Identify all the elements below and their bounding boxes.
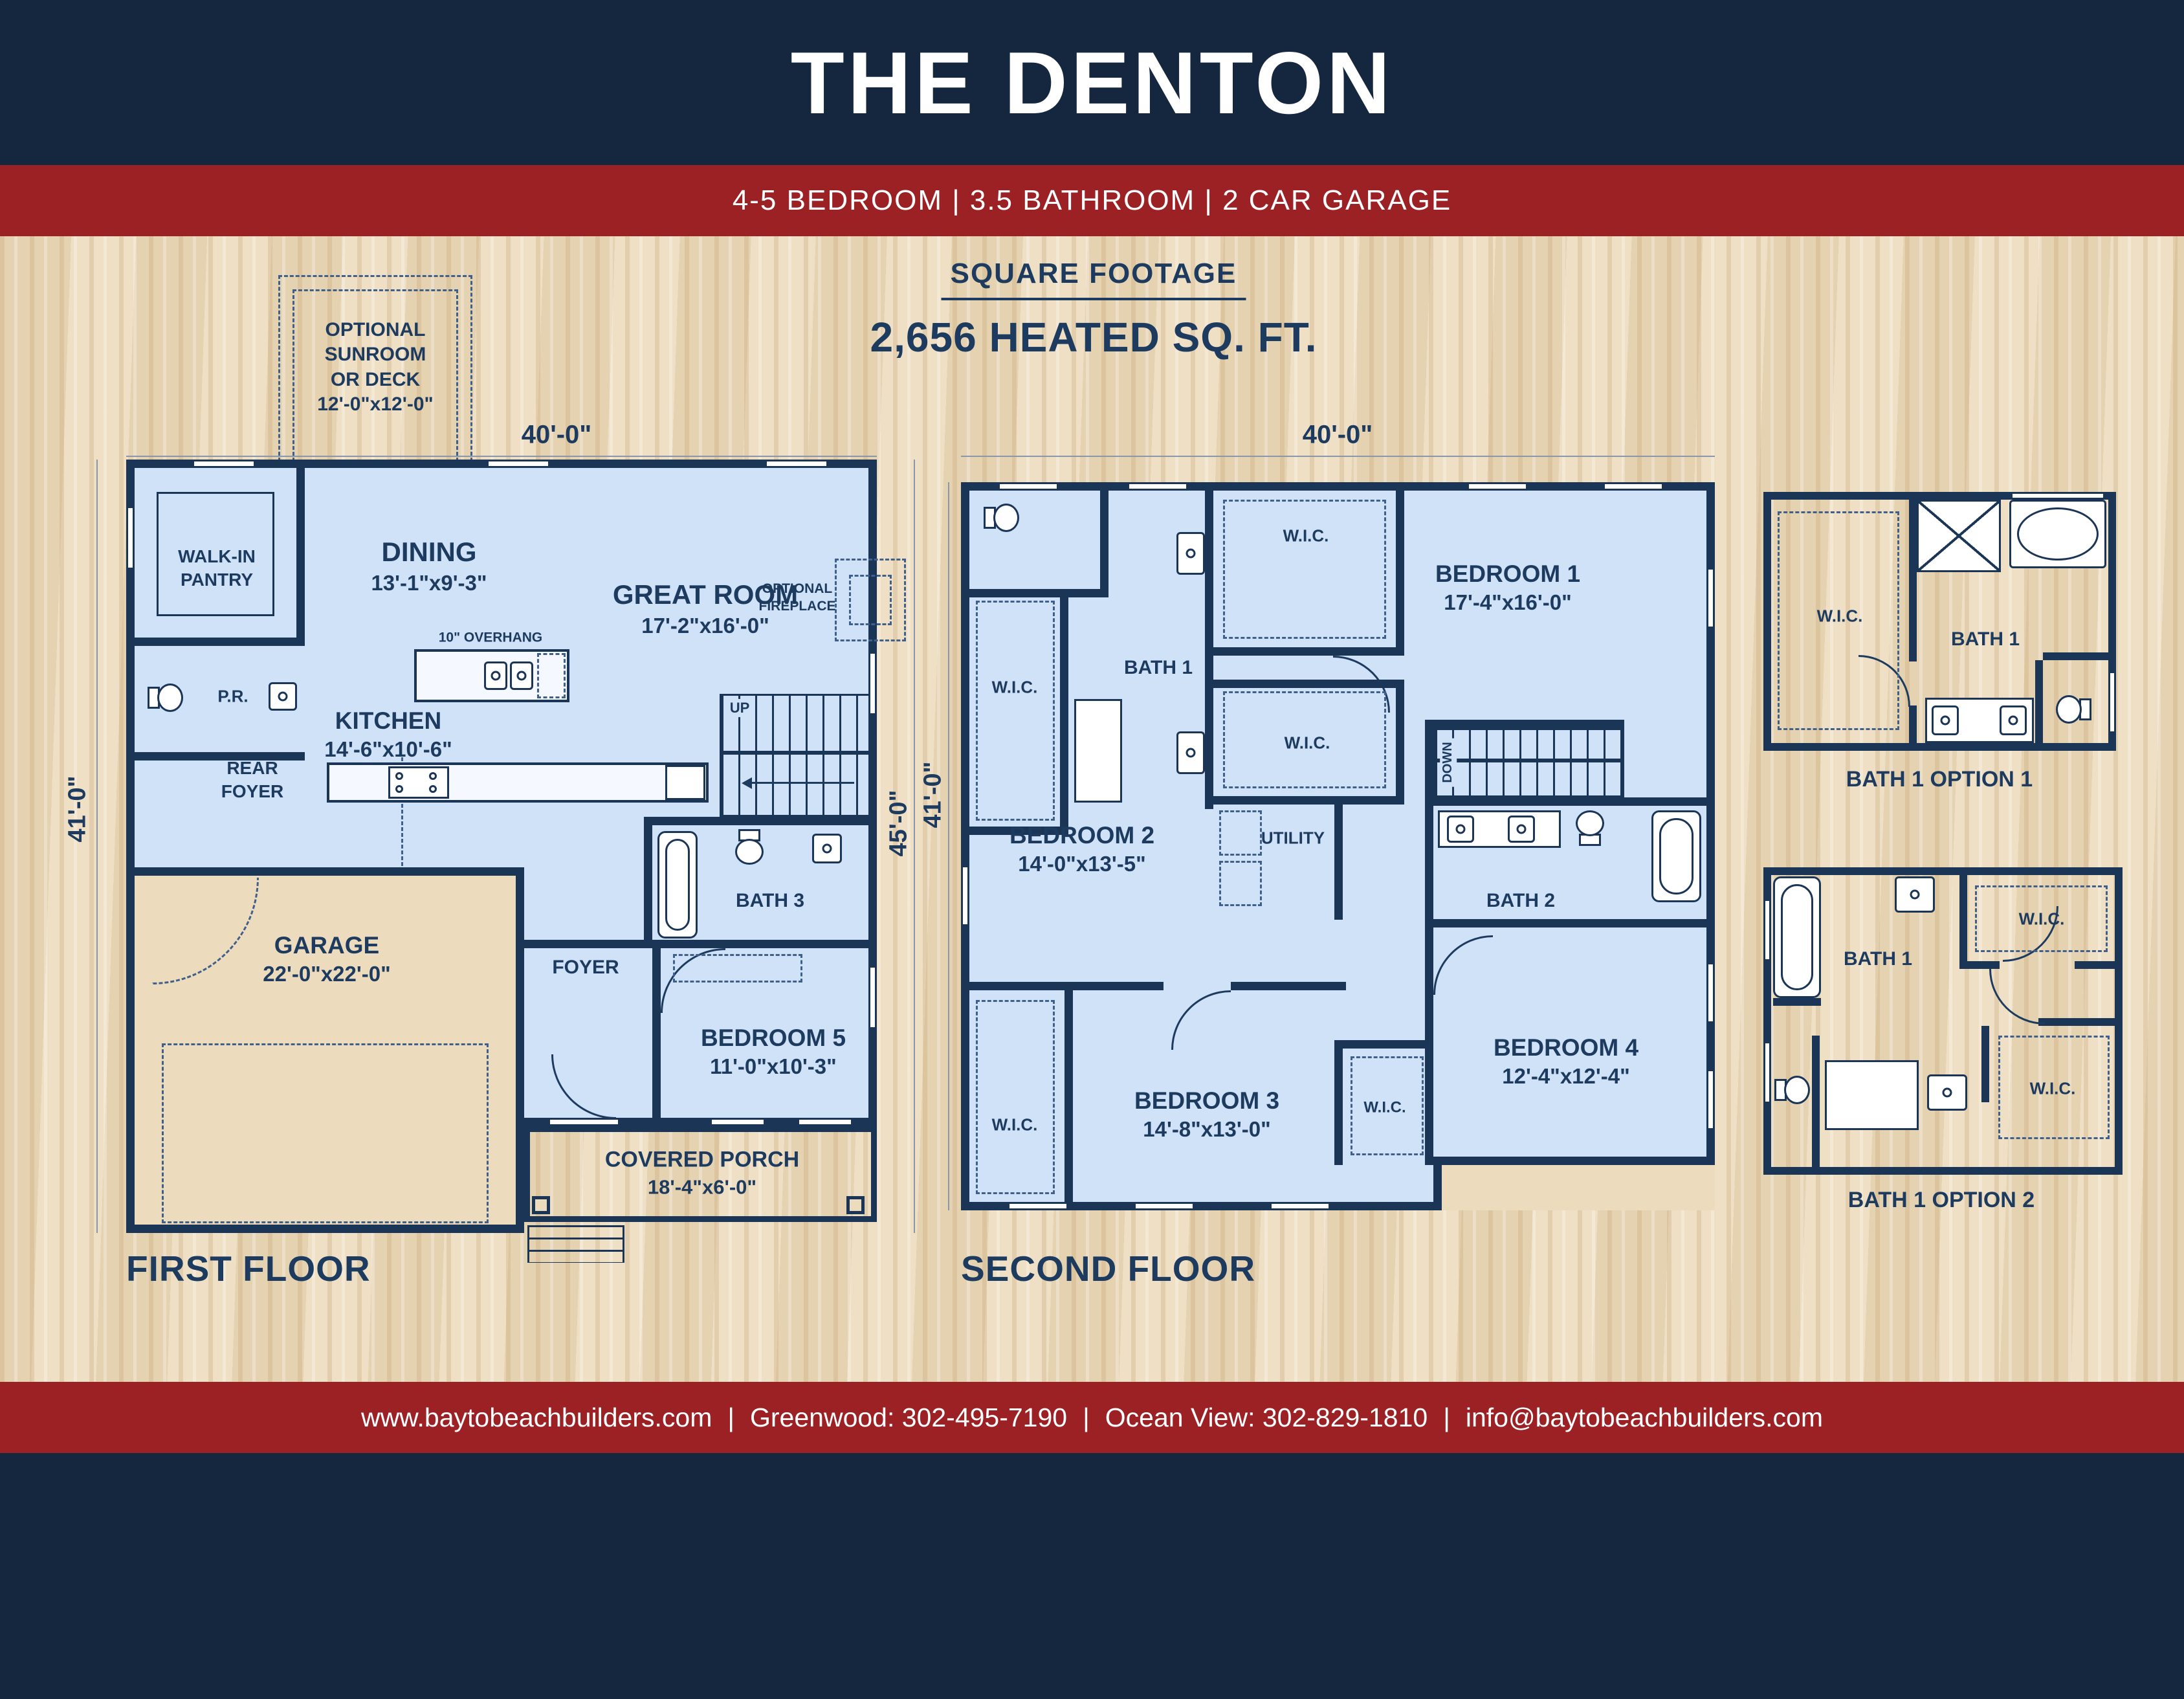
toilet-icon xyxy=(739,829,764,863)
rear-foyer-label: FOYER xyxy=(221,780,283,803)
dining-name: DINING xyxy=(371,535,487,570)
window xyxy=(126,508,135,568)
utility-label: UTILITY xyxy=(1261,827,1325,849)
window xyxy=(961,867,969,924)
porch-name: COVERED PORCH xyxy=(605,1146,799,1174)
wall xyxy=(1213,680,1404,688)
wall xyxy=(1773,998,1821,1006)
fireplace-label: FIREPLACE xyxy=(758,598,835,616)
overhang-label: 10" OVERHANG xyxy=(439,630,543,647)
first-floor-title: FIRST FLOOR xyxy=(126,1248,371,1289)
fireplace-inner-outline xyxy=(849,575,892,625)
bath1-label: BATH 1 xyxy=(1951,627,2020,652)
wall xyxy=(1425,797,1433,927)
square-footage-heading: SQUARE FOOTAGE xyxy=(942,258,1246,300)
bedroom5-dims: 11'-0"x10'-3" xyxy=(701,1054,846,1081)
window xyxy=(1000,482,1057,491)
sink-icon xyxy=(1176,532,1205,575)
dining-dims: 13'-1"x9'-3" xyxy=(371,570,487,597)
closet-outline xyxy=(976,601,1055,821)
stair-rail xyxy=(1433,759,1624,762)
wall xyxy=(1812,1036,1820,1167)
wall xyxy=(1396,491,1404,656)
window xyxy=(1136,1202,1193,1210)
flyer-page: THE DENTON 4-5 BEDROOM | 3.5 BATHROOM | … xyxy=(0,0,2184,1699)
sink-icon xyxy=(269,682,297,711)
wic-label: W.I.C. xyxy=(1817,605,1863,627)
window xyxy=(1763,901,1771,959)
wall xyxy=(1909,500,1917,661)
porch-dims: 18'-4"x6'-0" xyxy=(605,1174,799,1200)
bedroom1-name: BEDROOM 1 xyxy=(1435,559,1580,589)
sink-icon xyxy=(812,834,842,863)
closet-outline xyxy=(976,1000,1055,1194)
toilet-icon xyxy=(1774,1076,1808,1100)
wall xyxy=(969,589,1109,597)
sink-icon xyxy=(1895,876,1935,913)
dimension-line xyxy=(914,460,915,1233)
wall xyxy=(1959,961,2000,969)
wic-label: W.I.C. xyxy=(992,676,1038,698)
wall xyxy=(1213,796,1404,805)
window xyxy=(1706,1071,1715,1128)
wall xyxy=(1425,927,1433,1040)
wic-label: W.I.C. xyxy=(2030,1078,2076,1099)
wall xyxy=(1425,720,1433,797)
separator: | xyxy=(1443,1403,1450,1433)
powder-room-label: P.R. xyxy=(217,685,248,707)
closet-outline xyxy=(673,954,802,983)
bathtub-icon xyxy=(1773,876,1821,998)
wall xyxy=(1334,1040,1343,1165)
second-floor-notch xyxy=(1433,1157,1715,1210)
wic-label: W.I.C. xyxy=(1283,525,1329,546)
kitchen-name: KITCHEN xyxy=(324,705,452,736)
wall xyxy=(524,940,877,948)
wall xyxy=(1909,705,1917,743)
shower-icon xyxy=(1917,500,2001,572)
second-floor-depth-dim: 41'-0" xyxy=(920,761,947,828)
wall xyxy=(1064,990,1073,1210)
window xyxy=(1763,1043,1771,1102)
email-link[interactable]: info@baytobeachbuilders.com xyxy=(1466,1403,1823,1433)
great-room-dims: 17'-2"x16'-0" xyxy=(613,612,798,639)
sunroom-dims: 12'-0"x12'-0" xyxy=(317,392,434,417)
bath1-label: BATH 1 xyxy=(1124,656,1193,680)
window xyxy=(1605,482,1662,491)
stairs-up-label: UP xyxy=(726,699,754,717)
garage-name: GARAGE xyxy=(263,930,390,961)
window xyxy=(799,1118,851,1126)
page-title: THE DENTON xyxy=(791,32,1394,133)
dryer-outline xyxy=(1219,861,1262,906)
bedroom4-name: BEDROOM 4 xyxy=(1494,1032,1638,1063)
wall xyxy=(1334,805,1343,920)
sunroom-label: OPTIONAL xyxy=(317,318,434,342)
window xyxy=(489,460,548,468)
sink-icon xyxy=(1927,1074,1967,1111)
dimension-line xyxy=(126,456,877,457)
front-door-opening xyxy=(550,1118,618,1126)
wic-label: W.I.C. xyxy=(992,1114,1038,1135)
bathtub-icon xyxy=(1651,810,1701,902)
first-floor-depth-dim: 41'-0" xyxy=(64,775,92,842)
wall xyxy=(1959,875,1967,969)
bedroom5-name: BEDROOM 5 xyxy=(701,1023,846,1053)
wall xyxy=(1981,1026,1989,1102)
toilet-icon xyxy=(984,504,1017,528)
sink-icon xyxy=(484,661,507,690)
bath2-label: BATH 2 xyxy=(1486,889,1555,913)
kitchen-dims: 14'-6"x10'-6" xyxy=(324,737,452,764)
toilet-icon xyxy=(2058,699,2091,724)
wall xyxy=(1433,919,1715,927)
second-floor-width-dim: 40'-0" xyxy=(1303,421,1373,450)
sink-icon xyxy=(1508,816,1535,843)
sink-icon xyxy=(2000,705,2027,735)
wall xyxy=(2043,652,2108,660)
porch-steps xyxy=(527,1225,624,1263)
window xyxy=(1129,482,1186,491)
square-footage-value: 2,656 HEATED SQ. FT. xyxy=(870,313,1318,361)
bedroom2-dims: 14'-0"x13'-5" xyxy=(1009,851,1154,878)
first-floor-overall-depth-dim: 45'-0" xyxy=(885,790,913,856)
greenwood-phone[interactable]: Greenwood: 302-495-7190 xyxy=(750,1403,1067,1433)
window xyxy=(767,460,826,468)
wall xyxy=(2038,1018,2123,1026)
window xyxy=(1272,1202,1329,1210)
wall xyxy=(296,468,305,638)
bedroom4-dims: 12'-4"x12'-4" xyxy=(1494,1063,1638,1091)
foyer-label: FOYER xyxy=(552,955,619,980)
window xyxy=(194,460,254,468)
dimension-line xyxy=(96,460,98,1233)
wall xyxy=(644,817,877,825)
wall xyxy=(135,638,305,646)
separator: | xyxy=(727,1403,734,1433)
separator: | xyxy=(1083,1403,1090,1433)
bathtub-icon xyxy=(657,831,698,938)
porch-post xyxy=(846,1196,865,1214)
wall xyxy=(652,940,661,1126)
wic-label: W.I.C. xyxy=(2019,908,2065,929)
pantry-label: PANTRY xyxy=(178,568,256,592)
sunroom-label: SUNROOM xyxy=(317,343,434,368)
toilet-icon xyxy=(148,683,181,708)
sink-icon xyxy=(1447,816,1474,843)
rear-foyer-label: REAR xyxy=(221,757,283,780)
bedroom3-name: BEDROOM 3 xyxy=(1134,1085,1279,1116)
square-footage-block: SQUARE FOOTAGE 2,656 HEATED SQ. FT. xyxy=(870,258,1318,361)
first-floor-width-dim: 40'-0" xyxy=(522,421,592,450)
spec-summary: 4-5 BEDROOM | 3.5 BATHROOM | 2 CAR GARAG… xyxy=(733,184,1451,217)
sink-icon xyxy=(1176,731,1205,774)
porch-post xyxy=(532,1196,550,1214)
window xyxy=(1706,964,1715,1021)
window xyxy=(2108,673,2116,731)
wall xyxy=(1100,491,1109,597)
fridge-icon xyxy=(665,765,705,800)
fireplace-label: OPTIONAL xyxy=(758,581,835,598)
window xyxy=(2013,492,2103,500)
wall xyxy=(1060,589,1068,835)
bath3-label: BATH 3 xyxy=(736,889,804,913)
kitchen-counter xyxy=(327,762,709,803)
bath1-option2-title: BATH 1 OPTION 2 xyxy=(1848,1186,2035,1215)
wic-label: W.I.C. xyxy=(1363,1098,1406,1118)
ocean-view-phone[interactable]: Ocean View: 302-829-1810 xyxy=(1105,1403,1428,1433)
dimension-line xyxy=(961,456,1715,457)
window xyxy=(868,654,877,713)
stairs-down-label: DOWN xyxy=(1440,738,1457,786)
garage-door-outline xyxy=(162,1043,489,1223)
footer: BAY to BEACH BUILDERS INC. Some items sh… xyxy=(0,1453,2184,1699)
wall xyxy=(1433,720,1624,728)
stove-icon xyxy=(388,766,449,799)
stair-arrow xyxy=(751,782,854,784)
wall xyxy=(644,817,652,948)
wall xyxy=(1205,491,1213,809)
bath1-label: BATH 1 xyxy=(1844,947,1912,972)
pantry-label: WALK-IN xyxy=(178,545,256,568)
wall xyxy=(1425,1040,1433,1165)
washer-outline xyxy=(1219,810,1262,856)
island-overhang-outline xyxy=(537,653,566,698)
wall xyxy=(2075,961,2115,969)
contact-bar: www.baytobeachbuilders.com | Greenwood: … xyxy=(0,1382,2184,1453)
window xyxy=(712,1118,764,1126)
wall xyxy=(1433,797,1715,806)
window xyxy=(1009,1202,1066,1210)
toilet-icon xyxy=(1576,812,1600,846)
second-floor-title: SECOND FLOOR xyxy=(961,1248,1255,1289)
garage-dims: 22'-0"x22'-0" xyxy=(263,961,390,988)
bath1-option1-title: BATH 1 OPTION 1 xyxy=(1846,766,2033,794)
bedroom1-dims: 17'-4"x16'-0" xyxy=(1435,590,1580,617)
sink-icon xyxy=(510,661,533,690)
wic-label: W.I.C. xyxy=(1285,732,1330,753)
shower-icon xyxy=(1074,699,1122,803)
header-bar: THE DENTON xyxy=(0,0,2184,165)
wall xyxy=(1213,647,1404,656)
wall xyxy=(1334,1040,1433,1049)
window xyxy=(868,968,877,1027)
sink-icon xyxy=(1932,705,1959,735)
wall xyxy=(969,982,1164,990)
stair-rail xyxy=(720,751,877,755)
window xyxy=(1706,570,1715,627)
spec-band: 4-5 BEDROOM | 3.5 BATHROOM | 2 CAR GARAG… xyxy=(0,165,2184,236)
wall xyxy=(2035,660,2043,743)
window xyxy=(1469,482,1526,491)
stair-arrow-head xyxy=(742,777,752,789)
closet-outline xyxy=(1223,500,1386,639)
wall xyxy=(1396,680,1404,805)
wall xyxy=(1231,982,1346,990)
bedroom3-dims: 14'-8"x13'-0" xyxy=(1134,1116,1279,1144)
sunroom-label: OR DECK xyxy=(317,368,434,392)
shower-icon xyxy=(1825,1060,1919,1130)
dimension-line xyxy=(948,482,949,1210)
bedroom2-name: BEDROOM 2 xyxy=(1009,820,1154,850)
stairs-down xyxy=(1433,728,1624,797)
website-link[interactable]: www.baytobeachbuilders.com xyxy=(361,1403,712,1433)
bathtub-icon xyxy=(2009,500,2106,568)
